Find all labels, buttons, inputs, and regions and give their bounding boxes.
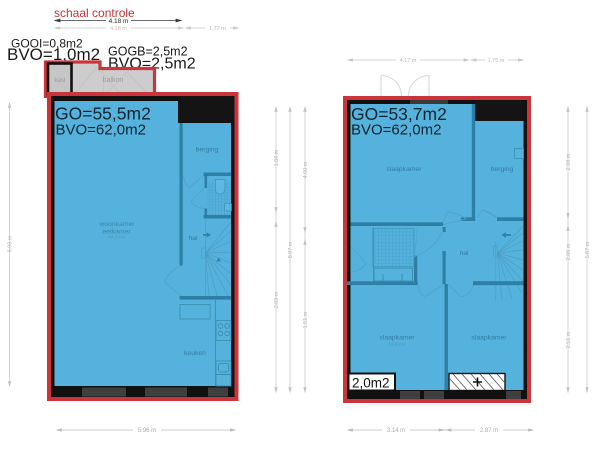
- svg-text:4.60 m: 4.60 m: [303, 161, 309, 178]
- svg-text:BVO=62,0m2: BVO=62,0m2: [351, 122, 441, 139]
- svg-text:woonkamer: woonkamer: [98, 221, 135, 228]
- svg-text:44,6 m2: 44,6 m2: [108, 235, 126, 241]
- svg-text:slaapkamer: slaapkamer: [471, 335, 507, 342]
- svg-text:slaapkamer: slaapkamer: [386, 166, 422, 173]
- svg-text:4.18 m: 4.18 m: [109, 18, 129, 25]
- svg-text:eetkamer: eetkamer: [102, 229, 131, 236]
- svg-text:4.17 m: 4.17 m: [400, 58, 417, 64]
- svg-text:BVO=62,0m2: BVO=62,0m2: [56, 122, 146, 139]
- svg-text:12,6 m2: 12,6 m2: [388, 342, 406, 348]
- svg-text:2.83 m: 2.83 m: [274, 291, 280, 308]
- svg-text:2.87 m: 2.87 m: [480, 428, 498, 434]
- svg-text:berging: berging: [196, 147, 219, 154]
- svg-text:2,0m2: 2,0m2: [352, 376, 390, 391]
- svg-text:8.97 m: 8.97 m: [288, 241, 294, 258]
- svg-text:hal: hal: [459, 250, 469, 257]
- svg-text:balkon: balkon: [103, 77, 124, 84]
- svg-text:3.14 m: 3.14 m: [387, 428, 405, 434]
- svg-text:1.75 m: 1.75 m: [488, 58, 505, 64]
- svg-text:8.98 m: 8.98 m: [8, 235, 14, 252]
- svg-text:1.51 m: 1.51 m: [303, 311, 309, 328]
- svg-text:2.98 m: 2.98 m: [566, 153, 572, 170]
- svg-text:5.96 m: 5.96 m: [138, 428, 156, 434]
- svg-text:2.06 m: 2.06 m: [566, 243, 572, 260]
- svg-text:4.18 m: 4.18 m: [110, 26, 127, 32]
- svg-text:berging: berging: [491, 166, 514, 173]
- svg-text:GO=55,5m2: GO=55,5m2: [55, 104, 151, 124]
- svg-text:kast: kast: [54, 78, 65, 84]
- svg-text:1.72 m: 1.72 m: [209, 26, 226, 32]
- svg-text:2.51 m: 2.51 m: [566, 331, 572, 348]
- svg-text:5.87 m: 5.87 m: [585, 241, 591, 258]
- svg-text:hal: hal: [188, 235, 198, 242]
- svg-text:slaapkamer: slaapkamer: [379, 335, 415, 342]
- svg-text:keuken: keuken: [184, 350, 206, 357]
- svg-text:1.56 m: 1.56 m: [274, 149, 280, 166]
